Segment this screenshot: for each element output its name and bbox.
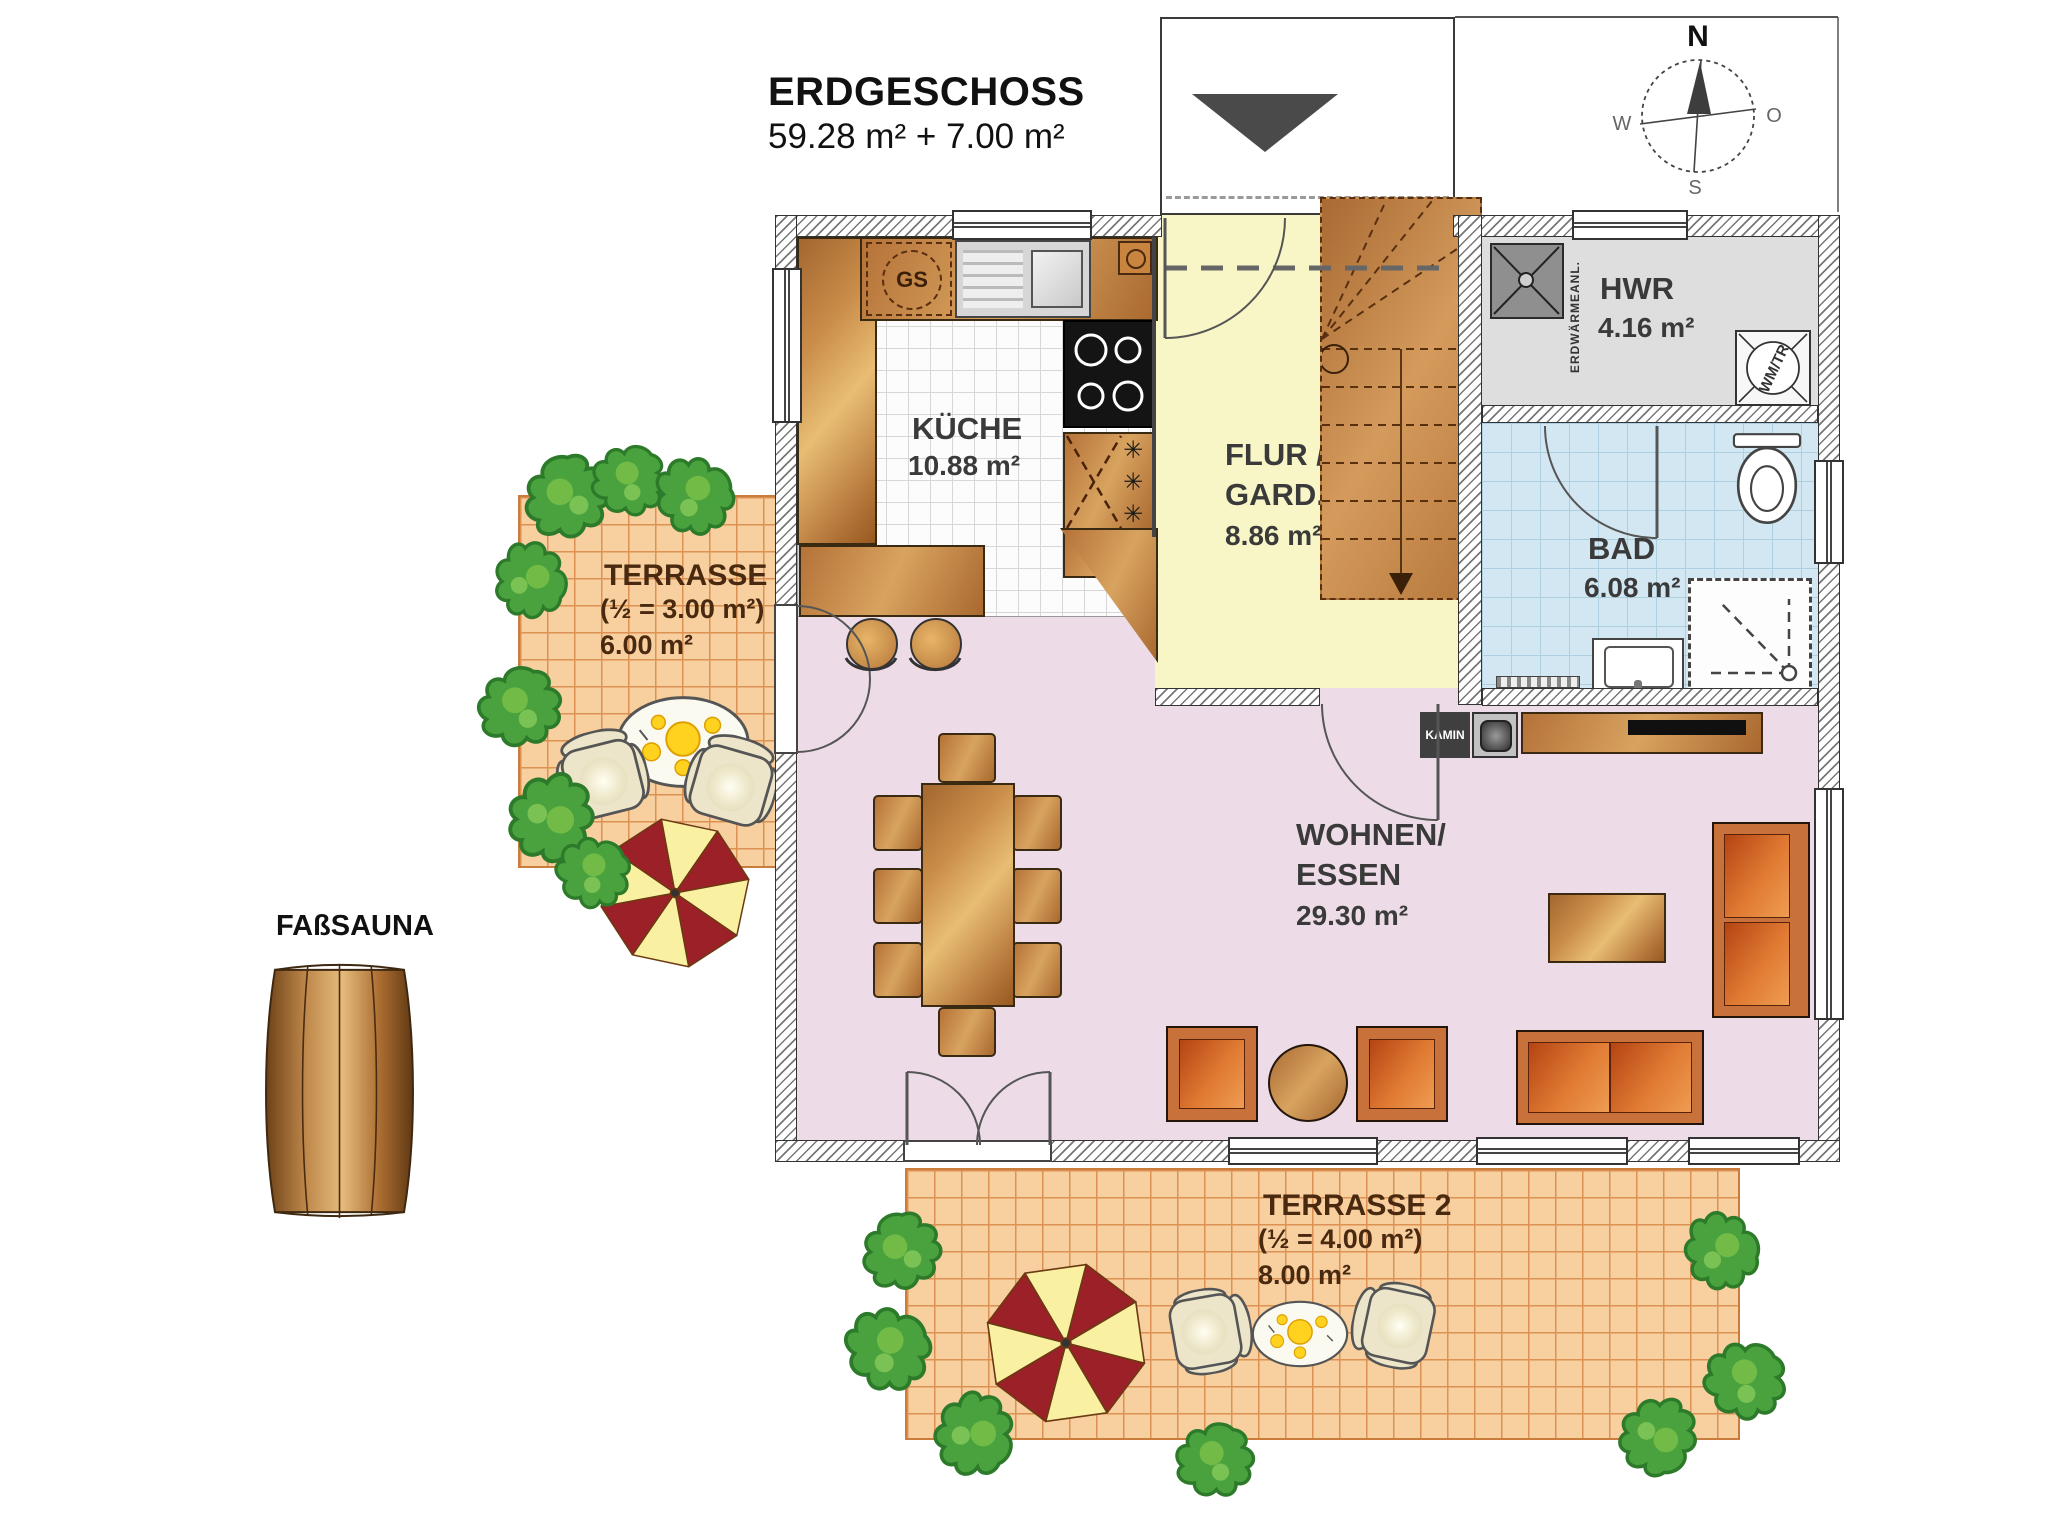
fireplace: KAMIN [1420,712,1470,758]
wall-bath-living [1482,688,1818,706]
bush [1671,1201,1771,1301]
cooktop-burners [1065,322,1153,426]
living-name-2: ESSEN [1296,858,1401,893]
toilet-icon [1728,432,1806,528]
kitchen-area: 10.88 m² [908,450,1020,481]
sofa-cushion [1610,1042,1692,1113]
floor-name: ERDGESCHOSS [768,70,1085,115]
bush [643,445,745,547]
fireplace-label: KAMIN [1425,728,1464,742]
tv [1628,720,1746,735]
window-living-bottom-2 [1476,1137,1628,1165]
geothermal-unit [1490,243,1564,319]
shower [1688,578,1812,696]
barrel-sauna-icon [242,952,437,1230]
dining-chair [1012,795,1062,851]
coffee-table [1548,893,1666,963]
kitchen-corner-unit [1118,241,1152,275]
kitchen-name: KÜCHE [912,412,1022,447]
bar-stool [846,618,898,670]
window-living-bottom-3 [1688,1137,1800,1165]
dining-chair [1012,942,1062,998]
dishwasher-label: GS [882,250,942,310]
living-area: 29.30 m² [1296,900,1408,931]
sink-drainboard [963,250,1023,308]
living-name-1: WOHNEN/ [1296,818,1446,853]
floorplan-canvas: ERDGESCHOSS 59.28 m² + 7.00 m² N W O S T… [0,0,2048,1536]
stove-top [1480,720,1512,752]
terrace-1-half: (½ = 3.00 m²) [600,594,764,626]
sofa-cushion [1724,834,1790,918]
armchair-cushion [1369,1039,1435,1109]
bath-name: BAD [1588,532,1655,567]
window-living-bottom-1 [1228,1137,1378,1165]
bath-radiator [1496,676,1580,688]
armchair [1356,1026,1448,1122]
terrace-1-name: TERRASSE 1 [604,558,792,593]
terrace-2-chair-left [1159,1281,1259,1381]
geothermal-symbol [1492,245,1561,316]
kitchen-bar-counter [799,545,985,617]
cooktop [1063,320,1155,428]
hall-name-2: GARD. [1225,478,1325,513]
bush [1607,1385,1709,1487]
svg-text:W: W [1613,113,1632,135]
compass-rose: N W O S [1598,16,1798,196]
utility-area: 4.16 m² [1598,312,1695,343]
svg-text:O: O [1766,105,1782,127]
window-kitchen-left [772,268,802,423]
staircase-treads [1322,199,1480,598]
window-utility-top [1572,210,1688,240]
sauna-label: FAßSAUNA [276,910,434,943]
window-bath-right [1814,460,1844,564]
floor-area-total: 59.28 m² + 7.00 m² [768,117,1085,157]
terrace-2-half: (½ = 4.00 m²) [1258,1224,1422,1256]
washer-dryer: WM/TR [1735,330,1811,406]
dishwasher: GS [866,242,952,316]
sofa-two-seat-bottom [1516,1030,1704,1125]
shower-symbol [1691,581,1809,693]
dining-table [921,783,1015,1007]
wall-hall-living [1155,688,1320,706]
geothermal-label: ERDWÄRMEANL. [1568,243,1584,373]
dining-chair [1012,868,1062,924]
sink-basin [1031,250,1083,308]
wall-kitchen-hall [1152,237,1156,537]
hall-name-1: FLUR / [1225,438,1325,473]
sofa-two-seat-right [1712,822,1810,1018]
terrace-2-chair-right [1344,1274,1446,1376]
window-living-right [1814,788,1844,1020]
armchair [1166,1026,1258,1122]
wall-utility-bath [1482,405,1818,423]
bush [858,1208,946,1296]
compass-icon: N W O S [1598,16,1798,196]
window-kitchen-top [952,210,1092,240]
washer-dryer-symbol: WM/TR [1737,332,1809,404]
dining-chair [938,1007,996,1057]
corner-unit-knob [1126,249,1146,269]
terrace1-door-sill [774,604,798,754]
svg-text:N: N [1687,20,1709,53]
freezer-symbol: ✳ ✳ ✳ [1065,434,1153,530]
dining-chair [938,733,996,783]
dining-chair [873,868,923,924]
entrance-porch [1160,17,1455,215]
armchair-cushion [1179,1039,1245,1109]
kitchen-sink [955,240,1091,318]
sofa-cushion [1528,1042,1610,1113]
sofa-cushion [1724,922,1790,1006]
french-door-sill [903,1140,1052,1162]
utility-name: HWR [1600,272,1674,307]
wall-hall-utility [1458,215,1482,705]
plan-title: ERDGESCHOSS 59.28 m² + 7.00 m² [768,70,1085,157]
hall-area: 8.86 m² [1225,520,1322,551]
svg-text:✳: ✳ [1123,436,1143,464]
svg-text:✳: ✳ [1123,468,1143,496]
svg-text:✳: ✳ [1123,500,1143,528]
terrace-2-umbrella [985,1262,1147,1424]
dining-chair [873,795,923,851]
terrace-1-area: 6.00 m² [600,630,693,662]
side-table-round [1268,1044,1348,1122]
bath-area: 6.08 m² [1584,572,1681,603]
terrace-2-table [1250,1296,1350,1372]
stove [1472,712,1518,758]
dining-chair [873,942,923,998]
bar-stool [910,618,962,670]
terrace-2-name: TERRASSE 2 [1263,1188,1451,1223]
freezer: ✳ ✳ ✳ [1063,432,1155,532]
svg-text:S: S [1688,177,1701,196]
terrace-2-area: 8.00 m² [1258,1260,1351,1292]
